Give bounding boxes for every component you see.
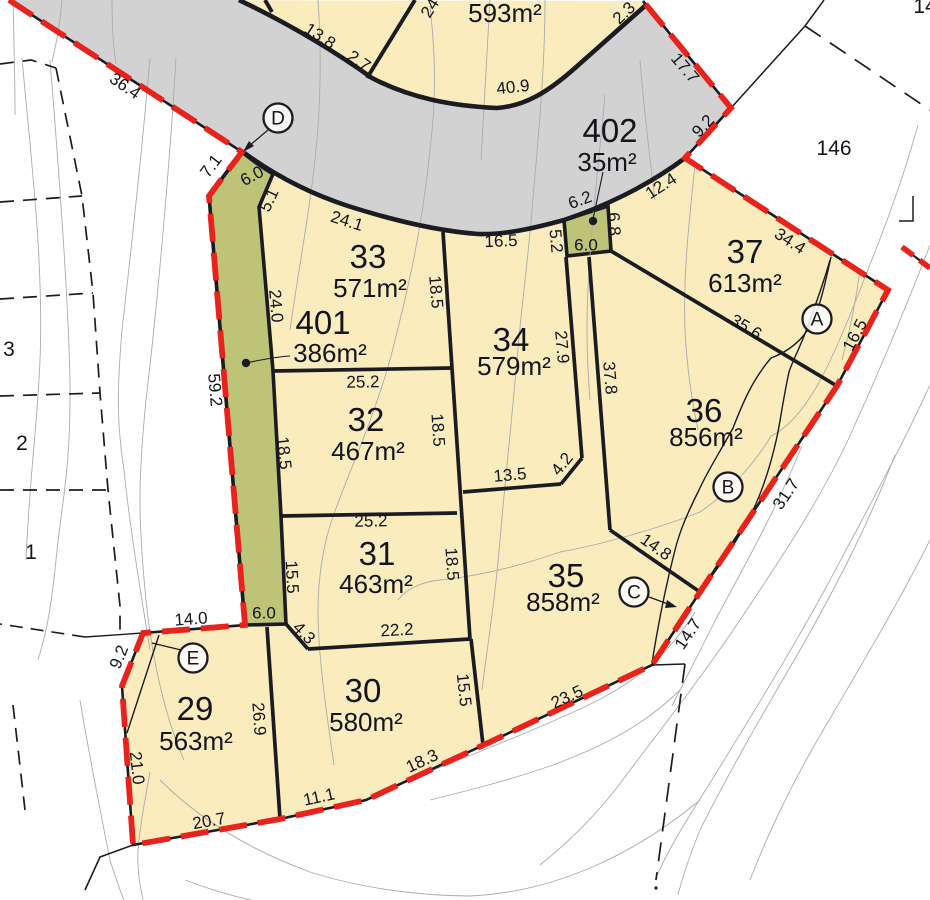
svg-text:1: 1 [25, 541, 37, 564]
svg-text:401: 401 [295, 304, 350, 341]
svg-text:18.5: 18.5 [427, 413, 448, 447]
svg-text:6.0: 6.0 [252, 604, 276, 623]
svg-text:856m²: 856m² [669, 422, 743, 452]
svg-text:613m²: 613m² [708, 268, 782, 298]
svg-text:14.0: 14.0 [174, 608, 208, 629]
svg-text:25.2: 25.2 [346, 372, 379, 392]
svg-text:B: B [722, 478, 735, 499]
svg-text:24.0: 24.0 [265, 289, 287, 324]
svg-text:3: 3 [3, 338, 15, 361]
svg-text:32: 32 [348, 401, 385, 438]
svg-text:31: 31 [359, 535, 396, 572]
svg-text:15.5: 15.5 [282, 560, 303, 594]
svg-text:402: 402 [582, 112, 637, 149]
svg-text:18.5: 18.5 [425, 275, 447, 310]
svg-text:2: 2 [16, 432, 28, 455]
svg-text:16.5: 16.5 [484, 231, 518, 251]
svg-text:15.5: 15.5 [453, 673, 475, 708]
svg-text:33: 33 [350, 238, 387, 275]
svg-text:467m²: 467m² [331, 436, 405, 466]
svg-text:386m²: 386m² [293, 338, 367, 368]
svg-text:6.8: 6.8 [604, 212, 625, 237]
svg-text:C: C [627, 583, 641, 604]
svg-text:29: 29 [177, 690, 214, 727]
svg-text:E: E [187, 649, 200, 670]
svg-text:37: 37 [727, 233, 764, 270]
svg-text:26.9: 26.9 [248, 702, 269, 736]
svg-text:146: 146 [816, 137, 851, 160]
svg-text:580m²: 580m² [329, 707, 403, 737]
svg-text:A: A [811, 310, 824, 331]
svg-text:571m²: 571m² [333, 273, 407, 303]
svg-text:25.2: 25.2 [354, 511, 387, 531]
svg-text:22.2: 22.2 [380, 620, 414, 641]
svg-text:5.2: 5.2 [546, 228, 567, 253]
svg-text:59.2: 59.2 [204, 373, 226, 408]
svg-text:593m²: 593m² [468, 0, 542, 28]
svg-text:30: 30 [345, 672, 382, 709]
svg-text:563m²: 563m² [159, 726, 233, 756]
svg-text:463m²: 463m² [339, 569, 413, 599]
svg-text:35m²: 35m² [577, 147, 637, 177]
svg-text:6.0: 6.0 [574, 236, 598, 255]
svg-text:14: 14 [913, 0, 930, 18]
svg-text:27.9: 27.9 [551, 330, 573, 365]
svg-text:40.9: 40.9 [496, 76, 531, 98]
svg-text:18.5: 18.5 [441, 547, 462, 581]
svg-text:21.0: 21.0 [126, 751, 148, 786]
svg-text:37.8: 37.8 [599, 361, 621, 396]
svg-text:D: D [271, 109, 285, 130]
svg-text:13.5: 13.5 [493, 464, 528, 486]
svg-text:858m²: 858m² [526, 587, 600, 617]
svg-text:579m²: 579m² [477, 351, 551, 381]
svg-text:18.5: 18.5 [273, 436, 295, 471]
